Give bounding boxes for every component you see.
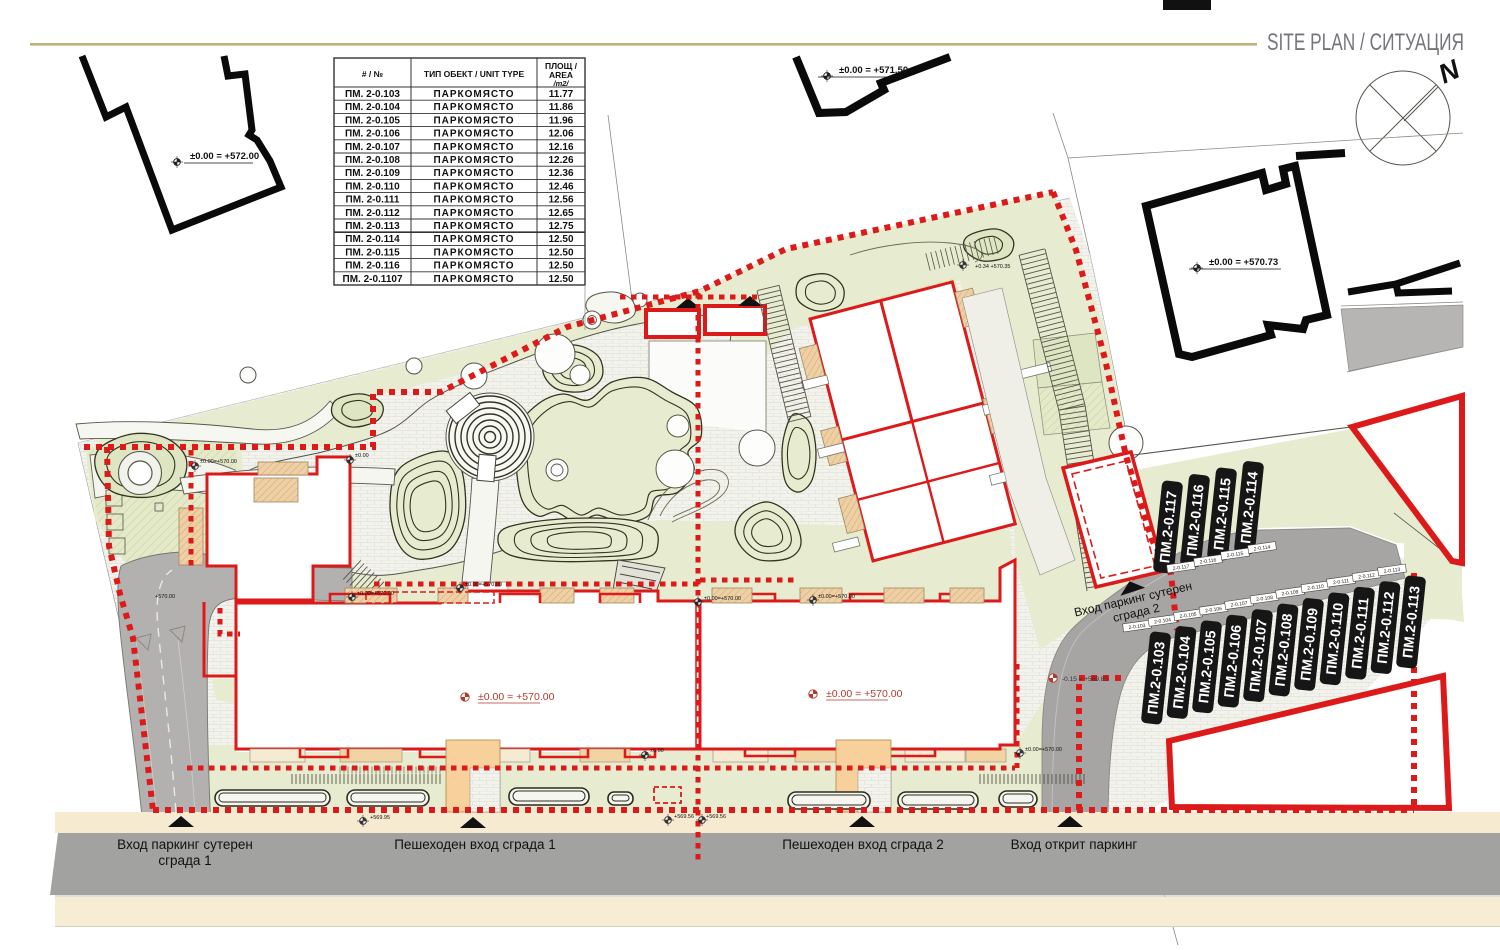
svg-text:ПАРКОМЯСТО: ПАРКОМЯСТО: [433, 221, 514, 232]
svg-text:±0.00 = +570.73: ±0.00 = +570.73: [1209, 257, 1278, 268]
svg-text:±0.00 = +572.00: ±0.00 = +572.00: [190, 151, 259, 162]
svg-text:ПАРКОМЯСТО: ПАРКОМЯСТО: [433, 168, 514, 179]
svg-text:12.50: 12.50: [548, 234, 573, 245]
svg-text:12.36: 12.36: [548, 168, 573, 179]
svg-text:ПМ. 2-0.108: ПМ. 2-0.108: [345, 155, 400, 166]
svg-text:±0.00=+570.00: ±0.00=+570.00: [704, 596, 741, 602]
svg-text:11.86: 11.86: [549, 102, 574, 113]
svg-text:ПМ. 2-0.114: ПМ. 2-0.114: [345, 234, 400, 245]
svg-text:ПАРКОМЯСТО: ПАРКОМЯСТО: [433, 274, 514, 285]
svg-text:Вход открит паркинг: Вход открит паркинг: [1011, 837, 1138, 852]
svg-text:ПМ. 2-0.110: ПМ. 2-0.110: [345, 181, 400, 192]
svg-text:+569.56: +569.56: [674, 814, 694, 820]
svg-text:±0.00 = +571.50: ±0.00 = +571.50: [839, 65, 908, 76]
svg-text:ПАРКОМЯСТО: ПАРКОМЯСТО: [433, 181, 514, 192]
svg-text:Вход паркинг сутерен: Вход паркинг сутерен: [117, 837, 253, 852]
svg-text:±0.00: ±0.00: [355, 453, 369, 459]
svg-text:ПАРКОМЯСТО: ПАРКОМЯСТО: [433, 247, 514, 258]
svg-text:+569.56: +569.56: [706, 814, 726, 820]
svg-text:12.65: 12.65: [548, 208, 573, 219]
svg-text:ПАРКОМЯСТО: ПАРКОМЯСТО: [433, 208, 514, 219]
svg-text:Пешеходен вход сграда 1: Пешеходен вход сграда 1: [394, 837, 556, 852]
svg-text:SITE PLAN / СИТУАЦИЯ: SITE PLAN / СИТУАЦИЯ: [1267, 29, 1464, 56]
svg-text:ПМ. 2-0.111: ПМ. 2-0.111: [346, 195, 400, 206]
svg-text:ПАРКОМЯСТО: ПАРКОМЯСТО: [433, 102, 514, 113]
svg-text:12.26: 12.26: [548, 155, 573, 166]
svg-text:+0.34 +570.35: +0.34 +570.35: [975, 264, 1010, 270]
svg-text:ПАРКОМЯСТО: ПАРКОМЯСТО: [433, 195, 514, 206]
svg-text:ПАРКОМЯСТО: ПАРКОМЯСТО: [433, 234, 514, 245]
svg-text:ПАРКОМЯСТО: ПАРКОМЯСТО: [433, 115, 514, 126]
svg-text:ПАРКОМЯСТО: ПАРКОМЯСТО: [433, 261, 514, 272]
svg-text:±0.00 = +570.00: ±0.00 = +570.00: [478, 691, 555, 703]
svg-text:±0.00 = +570.00: ±0.00 = +570.00: [826, 688, 903, 700]
svg-text:ТИП ОБЕКТ / UNIT TYPE: ТИП ОБЕКТ / UNIT TYPE: [424, 69, 525, 79]
svg-text:+569.95: +569.95: [370, 815, 390, 821]
svg-text:12.06: 12.06: [548, 129, 573, 140]
svg-text:ПМ. 2-0.104: ПМ. 2-0.104: [345, 102, 400, 113]
svg-text:ПАРКОМЯСТО: ПАРКОМЯСТО: [433, 142, 514, 153]
svg-text:ПМ. 2-0.107: ПМ. 2-0.107: [345, 142, 400, 153]
svg-text:12.46: 12.46: [548, 181, 573, 192]
svg-text:сграда 1: сграда 1: [158, 853, 211, 868]
svg-text:ПМ. 2-0.103: ПМ. 2-0.103: [345, 89, 400, 100]
svg-text:±0.00=+570.00: ±0.00=+570.00: [200, 459, 237, 465]
svg-text:12.75: 12.75: [548, 221, 573, 232]
svg-text:12.16: 12.16: [548, 142, 573, 153]
svg-text:ПАРКОМЯСТО: ПАРКОМЯСТО: [433, 155, 514, 166]
svg-text:ПМ. 2-0.105: ПМ. 2-0.105: [345, 115, 400, 126]
svg-text:# / №: # / №: [362, 69, 384, 79]
svg-text:11.77: 11.77: [549, 89, 574, 100]
svg-text:ПМ. 2-0.106: ПМ. 2-0.106: [345, 129, 400, 140]
svg-text:±0.00=+570.00: ±0.00=+570.00: [357, 591, 394, 597]
svg-text:-0.15 = +569.85: -0.15 = +569.85: [1062, 676, 1108, 683]
svg-text:12.56: 12.56: [548, 195, 573, 206]
svg-text:±0.00=+570.00: ±0.00=+570.00: [818, 594, 855, 600]
svg-text:±0.00=+570.00: ±0.00=+570.00: [465, 582, 502, 588]
svg-text:ПМ. 2-0.116: ПМ. 2-0.116: [345, 261, 400, 272]
svg-text:ПМ. 2-0.115: ПМ. 2-0.115: [345, 247, 400, 258]
svg-text:ПМ. 2-0.112: ПМ. 2-0.112: [345, 208, 400, 219]
svg-text:+570.00: +570.00: [155, 594, 175, 600]
svg-text:ПМ. 2-0.109: ПМ. 2-0.109: [345, 168, 400, 179]
svg-text:Пешеходен вход сграда 2: Пешеходен вход сграда 2: [782, 837, 944, 852]
svg-text:ПМ. 2-0.1107: ПМ. 2-0.1107: [343, 274, 403, 285]
svg-text:12.50: 12.50: [548, 247, 573, 258]
svg-text:12.50: 12.50: [548, 274, 573, 285]
svg-text:ПАРКОМЯСТО: ПАРКОМЯСТО: [433, 89, 514, 100]
svg-text:±0.00: ±0.00: [650, 748, 664, 754]
svg-text:ПМ. 2-0.113: ПМ. 2-0.113: [345, 221, 400, 232]
svg-text:±0.00=+570.00: ±0.00=+570.00: [1025, 747, 1062, 753]
svg-text:12.50: 12.50: [548, 261, 573, 272]
svg-text:11.96: 11.96: [549, 115, 574, 126]
svg-text:ПАРКОМЯСТО: ПАРКОМЯСТО: [433, 129, 514, 140]
